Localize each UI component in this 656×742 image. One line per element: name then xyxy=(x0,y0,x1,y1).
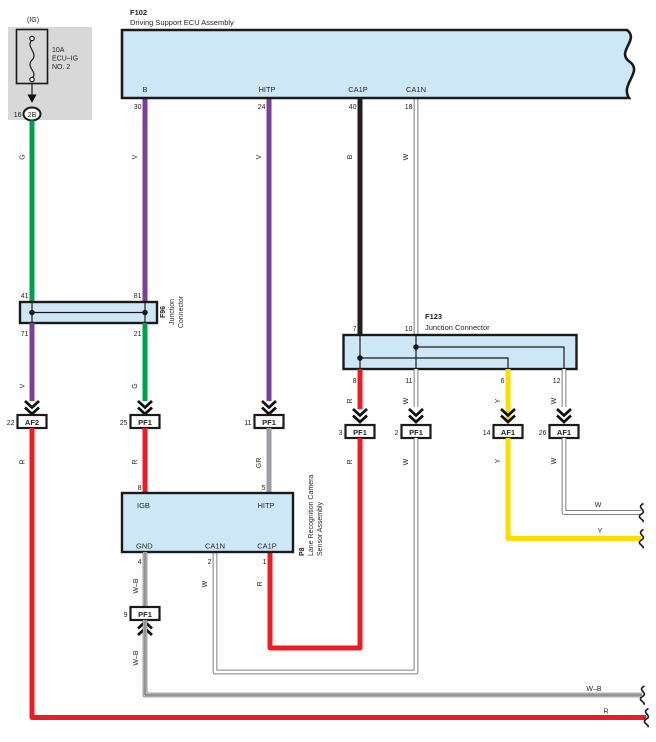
wiring-diagram-page: (IG) 10A ECU–IG NO. 2 2B 16 G V V B W F1… xyxy=(0,0,656,742)
fuse-terminal-top xyxy=(30,36,34,40)
connector-label: PF1 xyxy=(138,610,152,619)
f123-pin-8: 8 xyxy=(353,378,357,385)
camera-pin-ca1n-num: 2 xyxy=(208,559,212,566)
ecu-name: Driving Support ECU Assembly xyxy=(130,18,234,27)
ecu-pin-ca1n-num: 18 xyxy=(405,104,413,111)
f123-box xyxy=(344,335,577,369)
ecu-pin-ca1p-label: CA1P xyxy=(348,85,368,94)
camera-pin-hitp-num: 5 xyxy=(262,485,266,492)
f96-pin-81: 81 xyxy=(134,293,142,300)
f123-name: Junction Connector xyxy=(425,323,490,332)
fuse-pin-number: 16 xyxy=(14,112,22,119)
wire-label-r: R xyxy=(132,459,139,464)
connector-pin: 3 xyxy=(339,430,343,437)
connector-label: PF1 xyxy=(138,418,152,427)
ecu-pin-ca1p-num: 40 xyxy=(349,104,357,111)
junction-dot xyxy=(413,344,419,350)
connector-label: AF2 xyxy=(25,418,39,427)
junction-dot xyxy=(142,310,148,316)
wire-label-wb-right: W–B xyxy=(586,686,602,693)
wire-label-y: Y xyxy=(495,398,502,403)
wire-label-v: V xyxy=(20,383,27,388)
wire-label-r-bottom: R xyxy=(603,709,608,716)
fuse-header-label: (IG) xyxy=(27,17,39,24)
connector-label: AF1 xyxy=(501,428,515,437)
wire-label-wb: W–B xyxy=(133,578,140,594)
wire-label-b: B xyxy=(347,154,354,159)
wire-label-wb: W–B xyxy=(133,650,140,666)
connector-af1-26: AF1 26 xyxy=(539,425,579,438)
wire-label-g: G xyxy=(20,154,27,159)
f96-pin-71: 71 xyxy=(21,331,29,338)
junction-dot xyxy=(29,310,35,316)
connector-pin: 9 xyxy=(124,612,128,619)
connector-arrow-icon xyxy=(25,401,39,414)
camera-pin-ca1n-label: CA1N xyxy=(205,542,225,551)
connector-pin: 22 xyxy=(7,420,15,427)
f96-pin-41: 41 xyxy=(21,293,29,300)
connector-arrow-icon xyxy=(557,409,571,422)
ecu-code: F102 xyxy=(130,8,147,17)
connector-pf1-2: PF1 2 xyxy=(395,425,431,438)
f123-pin-12: 12 xyxy=(553,378,561,385)
connector-af1-14: AF1 14 xyxy=(483,425,523,438)
f123-pin-10: 10 xyxy=(405,326,413,333)
f123-code: F123 xyxy=(425,312,442,321)
connector-pf1-25: PF1 25 xyxy=(120,415,160,428)
ecu-pin-hitp-num: 24 xyxy=(258,104,266,111)
connector-label: PF1 xyxy=(353,428,367,437)
wire-label-r: R xyxy=(20,459,27,464)
f96-code: F96 xyxy=(160,306,167,318)
wire-label-w: W xyxy=(551,397,558,404)
connector-arrow-icon xyxy=(353,409,367,422)
fuse-name-line1: ECU–IG xyxy=(52,56,78,63)
connector-arrow-icon xyxy=(262,401,276,414)
wire-label-r: R xyxy=(257,581,264,586)
wire-white-af1-26-right xyxy=(564,438,641,513)
wire-label-gr: GR xyxy=(256,458,263,469)
f123-pin-6: 6 xyxy=(501,378,505,385)
wire-white-pf1-2-to-ca1n-outline xyxy=(215,438,416,672)
connector-label: PF1 xyxy=(262,418,276,427)
junction-f123: F123 Junction Connector 7 10 8 11 6 12 xyxy=(344,312,577,385)
connector-label: AF1 xyxy=(557,428,571,437)
camera-pin-igb-num: 8 xyxy=(138,485,142,492)
wire-wb-lower-stripe xyxy=(145,620,642,695)
wire-label-y-right: Y xyxy=(598,528,603,535)
wire-label-w: W xyxy=(403,458,410,465)
fuse-terminal-bottom xyxy=(30,77,34,81)
connector-pf1-3: PF1 3 xyxy=(339,425,375,438)
wire-label-v: V xyxy=(256,154,263,159)
fuse-name-line2: NO. 2 xyxy=(52,64,70,71)
connector-arrow-icon xyxy=(138,401,152,414)
connector-af2-22: AF2 22 xyxy=(7,415,47,428)
f96-name-line1: Junction xyxy=(169,299,176,325)
wire-label-g: G xyxy=(132,383,139,388)
wiring-diagram: (IG) 10A ECU–IG NO. 2 2B 16 G V V B W F1… xyxy=(0,0,656,742)
wire-label-y: Y xyxy=(495,458,502,463)
f123-pin-11: 11 xyxy=(405,378,412,385)
wire-label-w: W xyxy=(403,397,410,404)
ecu-pin-b-label: B xyxy=(142,85,147,94)
wire-label-w: W xyxy=(202,580,209,587)
connector-pin: 14 xyxy=(483,430,491,437)
wire-wb-lower xyxy=(145,620,642,695)
ecu-pin-ca1n-label: CA1N xyxy=(406,85,426,94)
camera-pin-hitp-label: HITP xyxy=(257,501,274,510)
connector-pin: 2 xyxy=(395,430,399,437)
camera-name-line1: Lane Recognition Camera xyxy=(308,475,315,556)
ecu-f102: F102 Driving Support ECU Assembly B HITP… xyxy=(122,8,634,111)
wire-label-v: V xyxy=(132,154,139,159)
f96-name-line2: Connector xyxy=(178,295,185,328)
wire-label-w: W xyxy=(551,457,558,464)
camera-pin-gnd-label: GND xyxy=(136,542,153,551)
connector-pin: 25 xyxy=(120,420,128,427)
connector-pf1-9: PF1 9 xyxy=(124,607,160,620)
camera-pin-ca1p-num: 1 xyxy=(263,559,267,566)
wire-wb-lower-outline xyxy=(145,620,642,695)
connector-pin: 26 xyxy=(539,430,547,437)
junction-dot xyxy=(357,355,363,361)
wire-white-pf1-2-to-ca1n xyxy=(215,438,416,672)
f123-pin-7: 7 xyxy=(353,326,357,333)
connector-label: PF1 xyxy=(409,428,423,437)
ecu-box xyxy=(122,30,634,98)
wire-label-w-right: W xyxy=(595,502,602,509)
f96-pin-21: 21 xyxy=(134,331,142,338)
fuse-terminal-label: 2B xyxy=(28,112,37,119)
wire-label-r: R xyxy=(347,459,354,464)
junction-f96: 41 81 71 21 F96 Junction Connector xyxy=(20,293,185,338)
fuse-amps: 10A xyxy=(52,47,65,54)
connector-pin: 11 xyxy=(244,420,251,427)
camera-pin-igb-label: IGB xyxy=(137,501,150,510)
camera-name-line2: Sensor Assembly xyxy=(317,501,324,556)
camera-pin-ca1p-label: CA1P xyxy=(257,542,277,551)
connector-pf1-11: PF1 11 xyxy=(244,415,283,428)
camera-code: P8 xyxy=(299,547,306,556)
wire-label-r: R xyxy=(347,398,354,403)
camera-p8: IGB HITP GND CA1N CA1P 8 5 4 2 1 P8 Lane… xyxy=(122,475,324,566)
wire-label-w: W xyxy=(403,153,410,160)
wire-yellow-af1-14-right xyxy=(508,438,641,539)
fuse-background xyxy=(8,27,92,120)
fuse-ecu-ig: (IG) 10A ECU–IG NO. 2 2B 16 xyxy=(8,17,92,121)
connector-arrow-icon xyxy=(409,409,423,422)
ecu-pin-b-num: 30 xyxy=(134,104,142,111)
camera-pin-gnd-num: 4 xyxy=(138,559,142,566)
ecu-pin-hitp-label: HITP xyxy=(258,85,275,94)
wire-white-af1-26-right-outline xyxy=(564,438,641,513)
